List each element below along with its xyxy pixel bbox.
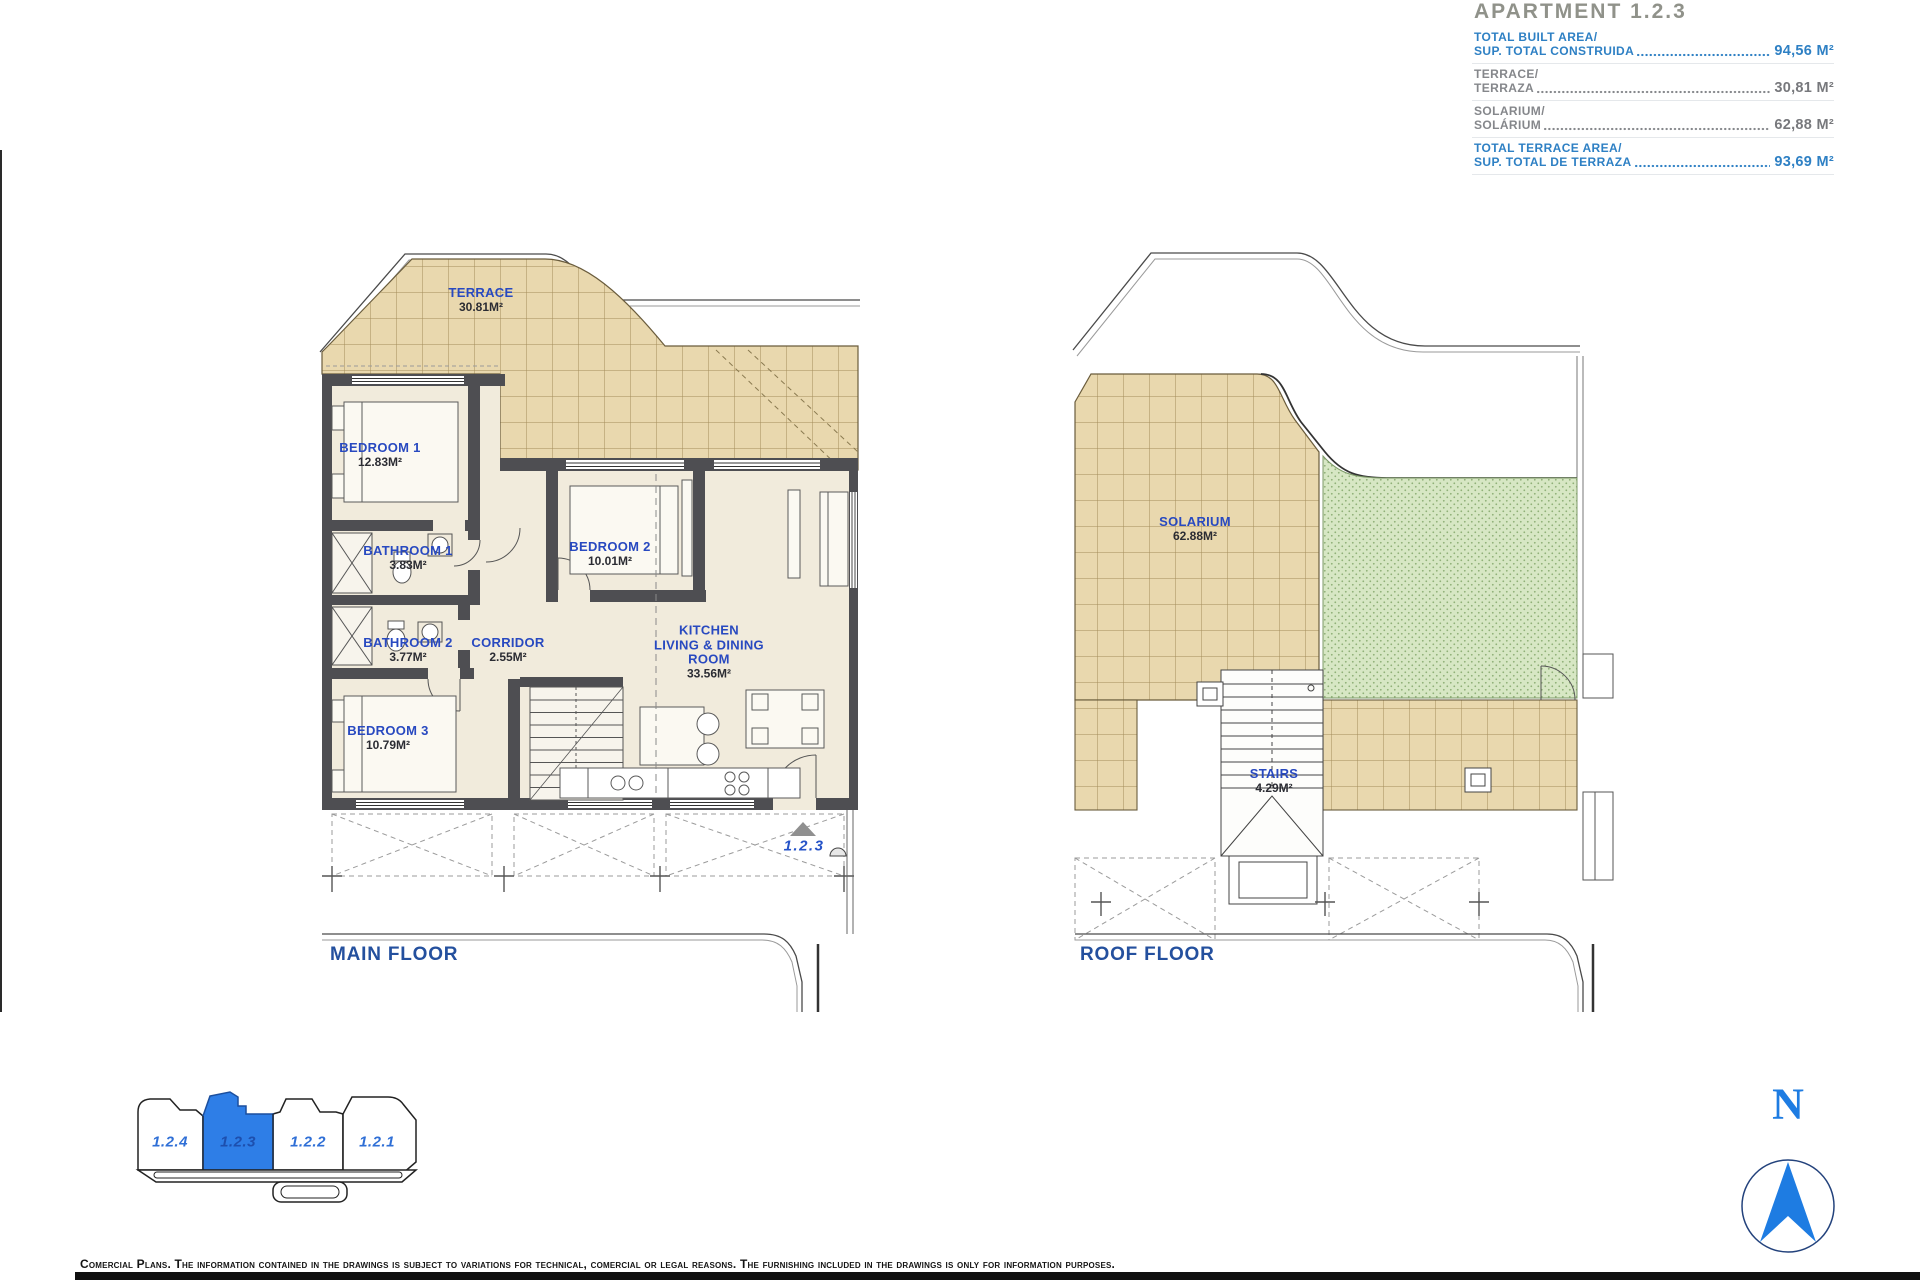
room-label-bedroom-1: BEDROOM 1 12.83M² [339,441,420,469]
key-plan-unit-1-2-4: 1.2.4 [152,1134,188,1151]
area-summary: APARTMENT 1.2.3 TOTAL BUILT AREA/ SUP. T… [1472,0,1834,175]
area-row-terrace: TERRACE/ TERRAZA30,81 M² [1472,64,1834,101]
main-floor-caption: MAIN FLOOR [330,944,458,966]
room-label-bedroom-2: BEDROOM 2 10.01M² [569,540,650,568]
compass: N [1738,1082,1838,1260]
key-plan: 1.2.4 1.2.3 1.2.2 1.2.1 [132,1084,422,1206]
north-label: N [1772,1079,1804,1130]
entrance-unit-marker: 1.2.3 [784,838,825,855]
room-label-bedroom-3: BEDROOM 3 10.79M² [347,724,428,752]
key-plan-unit-1-2-2: 1.2.2 [290,1134,326,1151]
area-row-total-built: TOTAL BUILT AREA/ SUP. TOTAL CONSTRUIDA9… [1472,27,1834,64]
area-row-total-terrace: TOTAL TERRACE AREA/ SUP. TOTAL DE TERRAZ… [1472,138,1834,175]
room-label-corridor: CORRIDOR 2.55M² [471,636,544,664]
dotted-leader [1637,52,1770,58]
area-value: 94,56 M² [1774,44,1834,59]
disclaimer-text: Comercial Plans. The information contain… [80,1257,1580,1271]
room-label-terrace: TERRACE 30.81M² [449,286,514,314]
room-label-stairs: STAIRS 4.29M² [1250,767,1299,795]
main-floor-plan: TERRACE 30.81M² BEDROOM 1 12.83M² BATHRO… [318,240,863,1040]
room-label-solarium: SOLARIUM 62.88M² [1159,515,1231,543]
area-row-solarium: SOLARIUM/ SOLÁRIUM62,88 M² [1472,101,1834,138]
floor-plan-sheet: APARTMENT 1.2.3 TOTAL BUILT AREA/ SUP. T… [0,0,1920,1280]
area-value: 30,81 M² [1774,81,1834,96]
key-plan-unit-1-2-1: 1.2.1 [359,1134,395,1151]
room-label-kitchen-living-dining: KITCHEN LIVING & DINING ROOM 33.56M² [654,623,764,680]
key-plan-unit-1-2-3: 1.2.3 [220,1134,256,1151]
room-label-bathroom-2: BATHROOM 2 3.77M² [363,636,452,664]
dotted-leader [1544,126,1770,132]
dotted-leader [1537,89,1770,95]
sheet-edge-line [0,150,2,1012]
footer-bar [75,1272,1920,1280]
roof-floor-caption: ROOF FLOOR [1080,944,1215,966]
room-label-bathroom-1: BATHROOM 1 3.83M² [363,544,452,572]
page-title: APARTMENT 1.2.3 [1474,0,1834,24]
area-value: 93,69 M² [1774,155,1834,170]
roof-floor-drawing [1071,240,1616,1040]
dotted-leader [1635,163,1771,169]
roof-floor-plan: SOLARIUM 62.88M² STAIRS 4.29M² ROOF FLOO… [1071,240,1616,1040]
area-value: 62,88 M² [1774,118,1834,133]
